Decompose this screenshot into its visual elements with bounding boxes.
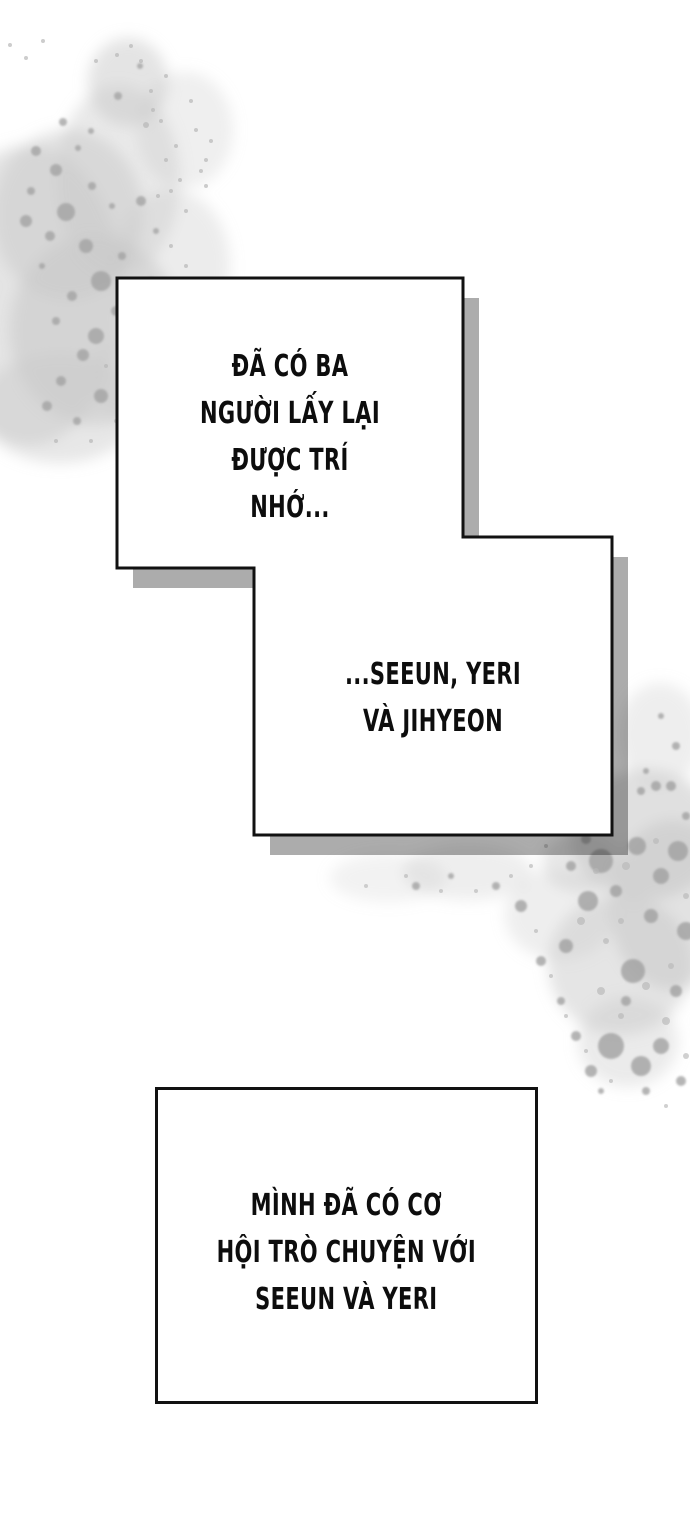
speech-line: NHỚ... (250, 484, 330, 531)
speech-line: HỘI TRÒ CHUYỆN VỚI (217, 1229, 476, 1276)
speech-panel-bottom: MÌNH ĐÃ CÓ CƠ HỘI TRÒ CHUYỆN VỚI SEEUN V… (155, 1087, 538, 1404)
speech-line: ĐƯỢC TRÍ (231, 437, 348, 484)
speech-line: NGƯỜI LẤY LẠI (200, 390, 380, 437)
speech-line: ...SEEUN, YERI (345, 651, 521, 698)
speech-line: SEEUN VÀ YERI (255, 1276, 437, 1323)
speech-panel-bottom-text: MÌNH ĐÃ CÓ CƠ HỘI TRÒ CHUYỆN VỚI SEEUN V… (217, 1168, 476, 1323)
speech-line: MÌNH ĐÃ CÓ CƠ (251, 1182, 442, 1229)
speech-panel-middle: ...SEEUN, YERI VÀ JIHYEON (308, 537, 559, 847)
speech-line: ĐÃ CÓ BA (232, 343, 349, 390)
speech-line: VÀ JIHYEON (363, 698, 503, 745)
